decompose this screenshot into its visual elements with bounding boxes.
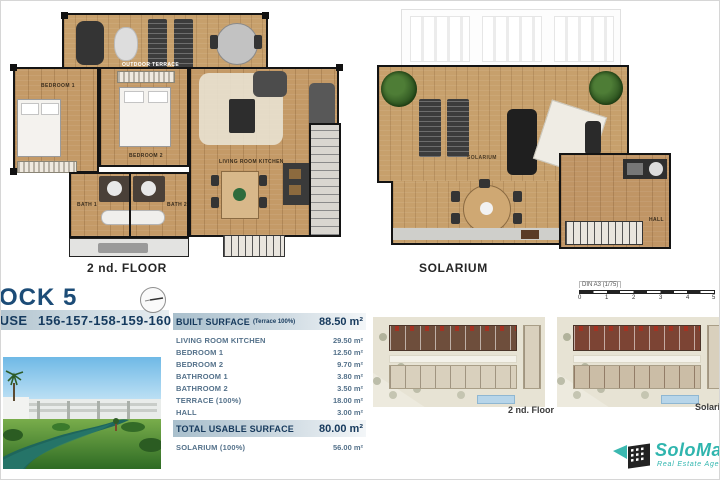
solarium-plan-label: SOLARIUM (419, 261, 488, 275)
pool (661, 395, 699, 404)
umbrella-base (585, 121, 601, 155)
sun-lounger (419, 99, 441, 157)
table-row: HALL3.00 m² (173, 406, 366, 418)
chair (513, 191, 522, 202)
pergola (401, 9, 621, 67)
armchair (253, 71, 287, 97)
table-row: TERRACE (100%)18.00 m² (173, 394, 366, 406)
wall-post (61, 12, 68, 19)
total-surface-value: 80.00 m² (319, 423, 363, 435)
siteplan-solarium (557, 317, 720, 407)
building-row (573, 365, 701, 389)
side-building (523, 325, 541, 389)
wall-divider (129, 174, 131, 240)
plant (589, 71, 623, 105)
total-surface-header: TOTAL USABLE SURFACE 80.00 m² (173, 420, 366, 437)
outdoor-sofa (507, 109, 537, 175)
wall-post (262, 12, 269, 19)
side-building (707, 325, 720, 389)
kitchenette (623, 159, 667, 179)
project-photo (3, 357, 161, 469)
building-row (389, 365, 517, 389)
vanity (99, 176, 131, 202)
balcony-bench (98, 243, 148, 253)
terrace-cushion (114, 27, 138, 61)
north-compass-icon (140, 287, 166, 313)
brochure-page: OUTDOOR TERRACE BEDROOM 1 BEDROOM 2 (0, 0, 720, 480)
terrace-chair (210, 35, 218, 49)
site-road (389, 355, 517, 363)
building-row-highlighted (389, 325, 517, 351)
chair (479, 179, 490, 188)
siteplan-2nd-floor (373, 317, 545, 407)
logo-building-icon (611, 437, 653, 471)
building-row-highlighted (573, 325, 701, 351)
vanity (133, 176, 165, 202)
siteplan-label: 2 nd. Floor (508, 405, 554, 415)
floorplan-2nd-floor: OUTDOOR TERRACE BEDROOM 1 BEDROOM 2 (7, 5, 355, 257)
table-row: BATHROOM 23.50 m² (173, 382, 366, 394)
exterior-stairs (309, 123, 341, 237)
total-surface-label: TOTAL USABLE SURFACE (176, 424, 294, 434)
stairs (223, 235, 285, 257)
logo-name: SoloMar (655, 440, 720, 461)
dining-chair (211, 197, 219, 208)
room-label: HALL (649, 217, 664, 223)
unit-numbers: 156-157-158-159-160 (38, 313, 171, 328)
scale-label: DIN A3 (1/75) (579, 281, 621, 288)
terrace-lounger (76, 21, 104, 65)
surface-table: BUILT SURFACE (Terrace 100%) 88.50 m² LI… (173, 313, 366, 453)
bathrooms-area: BATH 1 BATH 2 (69, 172, 189, 238)
bottom-balcony (69, 238, 189, 257)
solarium-row: SOLARIUM (100%) 56.00 m² (173, 441, 366, 453)
logo-tagline: Real Estate Agency (657, 461, 720, 468)
room-label: BATH 1 (77, 202, 97, 208)
dining-chair (211, 175, 219, 186)
room-label: SOLARIUM (467, 155, 497, 161)
scale-bar (579, 290, 715, 294)
room-label: BEDROOM 1 (41, 83, 75, 89)
bedroom1-area: BEDROOM 1 (13, 67, 99, 173)
room-label: BATH 2 (167, 202, 187, 208)
terrace-chair (254, 35, 262, 49)
room-label: LIVING ROOM KITCHEN (219, 159, 284, 165)
table-row: BATHROOM 13.80 m² (173, 370, 366, 382)
bedroom2-area: BEDROOM 2 (99, 67, 189, 167)
agency-logo: SoloMar Real Estate Agency (611, 437, 720, 475)
chair (451, 191, 460, 202)
table-row: LIVING ROOM KITCHEN29.50 m² (173, 334, 366, 346)
built-surface-header: BUILT SURFACE (Terrace 100%) 88.50 m² (173, 313, 366, 330)
block-title: BLOCK 5 (0, 284, 77, 312)
chair (451, 213, 460, 224)
floorplan-label: 2 nd. FLOOR (87, 261, 167, 275)
sun-lounger (447, 99, 469, 157)
stairs (565, 221, 643, 245)
terrace-table (216, 23, 258, 65)
chair (513, 213, 522, 224)
table-row: BEDROOM 112.50 m² (173, 346, 366, 358)
pool (477, 395, 515, 404)
bed (119, 87, 171, 147)
outdoor-terrace-area: OUTDOOR TERRACE (62, 13, 268, 71)
room-label: BEDROOM 2 (129, 153, 163, 159)
wardrobe (17, 161, 77, 173)
site-road (573, 355, 701, 363)
bathtub (101, 210, 165, 225)
wardrobe (117, 71, 175, 83)
coffee-table (229, 99, 255, 133)
dining-chair (259, 197, 267, 208)
floorplan-solarium: SOLARIUM HALL (369, 5, 720, 255)
round-dining-table (463, 185, 511, 233)
built-surface-value: 88.50 m² (319, 316, 363, 328)
siteplan-label: Solarium (695, 402, 720, 412)
bed (17, 99, 61, 157)
dining-table (221, 171, 259, 219)
plant (381, 71, 417, 107)
built-surface-note: (Terrace 100%) (253, 319, 295, 325)
scale-ticks: 0 1 2 3 4 5 (579, 295, 715, 303)
table-row: BEDROOM 29.70 m² (173, 358, 366, 370)
dining-chair (259, 175, 267, 186)
hall-area: HALL (559, 153, 671, 249)
unit-type: PENTHOUSE (0, 313, 28, 328)
built-surface-label: BUILT SURFACE (176, 317, 250, 327)
